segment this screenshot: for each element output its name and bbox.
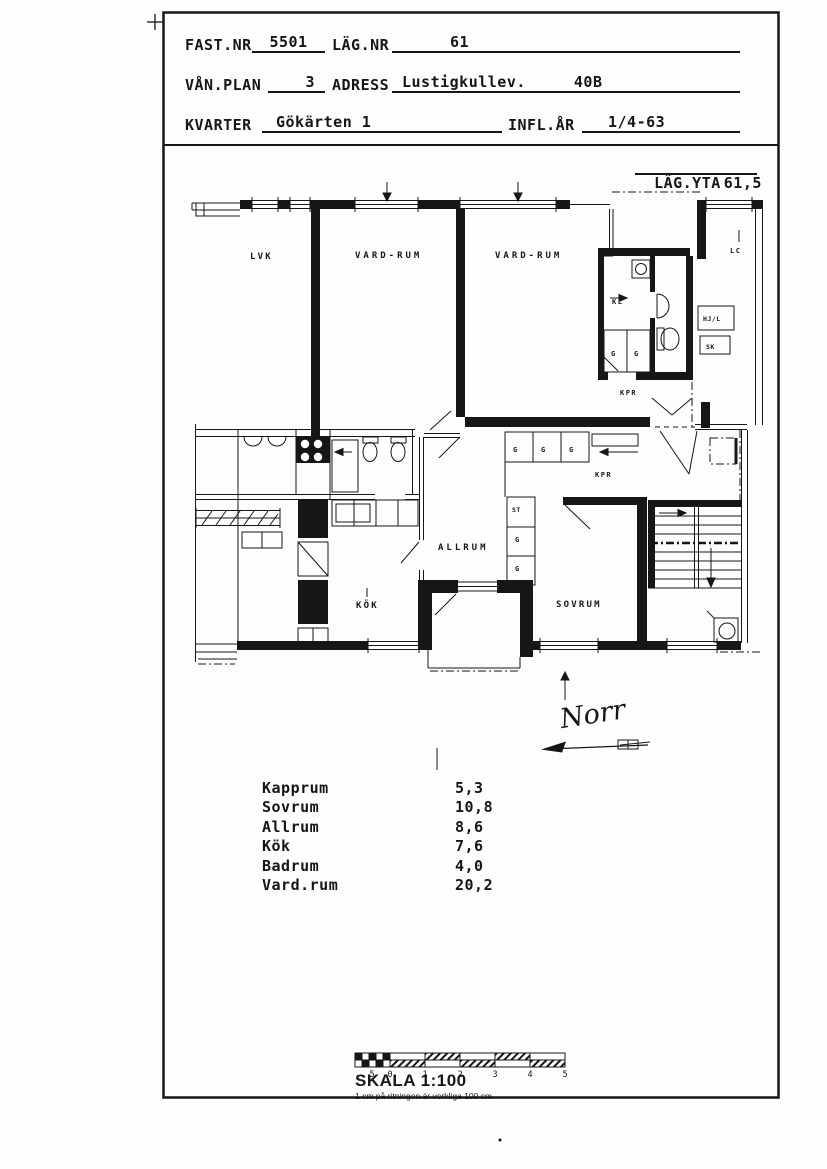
neighbor-room-label: LVK: [250, 252, 273, 262]
wardrobe-label: G: [611, 350, 617, 358]
wardrobe-label: G: [513, 446, 519, 454]
sk-label: SK: [706, 343, 715, 351]
room-row: Vard.rum20,2: [262, 876, 493, 895]
room-area: 10,8: [455, 798, 493, 816]
scale-note: 1 cm på ritningen är verkliga 100 cm: [355, 1091, 492, 1101]
room-row: Badrum4,0: [262, 857, 493, 876]
svg-text:3: 3: [492, 1070, 497, 1080]
wardrobe-label: G: [634, 350, 640, 358]
north-label: Norr: [557, 694, 630, 735]
fast-nr-value: 5501: [252, 32, 325, 53]
lc-label: LC: [730, 247, 741, 255]
kok-label: KÖK: [356, 600, 379, 611]
sovrum-label: SOVRUM: [556, 600, 602, 610]
room-row: Kök7,6: [262, 837, 493, 856]
thin-linework: [192, 182, 763, 770]
dashdot-lines: [198, 192, 762, 671]
kvarter-label: KVARTER: [185, 116, 252, 134]
vardrum-right-label: VARD-RUM: [495, 251, 562, 261]
allrum-label: ALLRUM: [438, 543, 489, 553]
scale-title: SKALA 1:100: [355, 1071, 467, 1091]
lag-yta-value: 61,5: [724, 174, 762, 192]
svg-text:4: 4: [527, 1070, 532, 1080]
wardrobe-label: G: [569, 446, 575, 454]
wardrobe-label: G: [515, 536, 521, 544]
svg-text:5: 5: [562, 1070, 567, 1080]
room-area: 20,2: [455, 876, 493, 894]
kl-closet-label: KL: [612, 298, 623, 306]
room-area-list: Kapprum5,3 Sovrum10,8 Allrum8,6 Kök7,6 B…: [262, 779, 493, 895]
infl-ar-label: INFL.ÅR: [508, 116, 575, 134]
apartment-area: LÄG.YTA61,5: [635, 150, 757, 175]
kapprum-lower-label: KPR: [595, 471, 612, 479]
room-row: Sovrum10,8: [262, 798, 493, 817]
st-closet-label: ST: [512, 506, 521, 514]
van-plan-label: VÅN.PLAN: [185, 76, 261, 94]
room-area: 8,6: [455, 818, 484, 836]
scanned-floorplan-document: LVK VARD-RUM VARD-RUM ALLRUM KÖK SOVRUM …: [0, 0, 827, 1169]
room-area: 4,0: [455, 857, 484, 875]
wardrobe-label: G: [541, 446, 547, 454]
fast-nr-label: FAST.NR: [185, 36, 252, 54]
vardrum-left-label: VARD-RUM: [355, 251, 422, 261]
room-area: 7,6: [455, 837, 484, 855]
kvarter-value: Gökärten 1: [262, 112, 502, 133]
adress-label: ADRESS: [332, 76, 389, 94]
hjl-label: HJ/L: [703, 315, 721, 323]
room-area: 5,3: [455, 779, 484, 797]
plan-geometry: LVK VARD-RUM VARD-RUM ALLRUM KÖK SOVRUM …: [192, 182, 763, 770]
scan-dot: [499, 1139, 502, 1142]
adress-number: 40B: [574, 73, 603, 91]
wardrobe-label: G: [515, 565, 521, 573]
van-plan-value: 3: [268, 72, 325, 93]
lag-nr-value: 61: [392, 32, 740, 53]
lag-yta-label: LÄG.YTA: [654, 174, 721, 192]
room-row: Allrum8,6: [262, 818, 493, 837]
infl-ar-value: 1/4-63: [582, 112, 740, 133]
north-arrow: Norr: [541, 694, 650, 753]
room-row: Kapprum5,3: [262, 779, 493, 798]
adress-value: Lustigkullev.40B: [392, 72, 740, 93]
lag-nr-label: LÄG.NR: [332, 36, 389, 54]
kapprum-upper-label: KPR: [620, 389, 637, 397]
